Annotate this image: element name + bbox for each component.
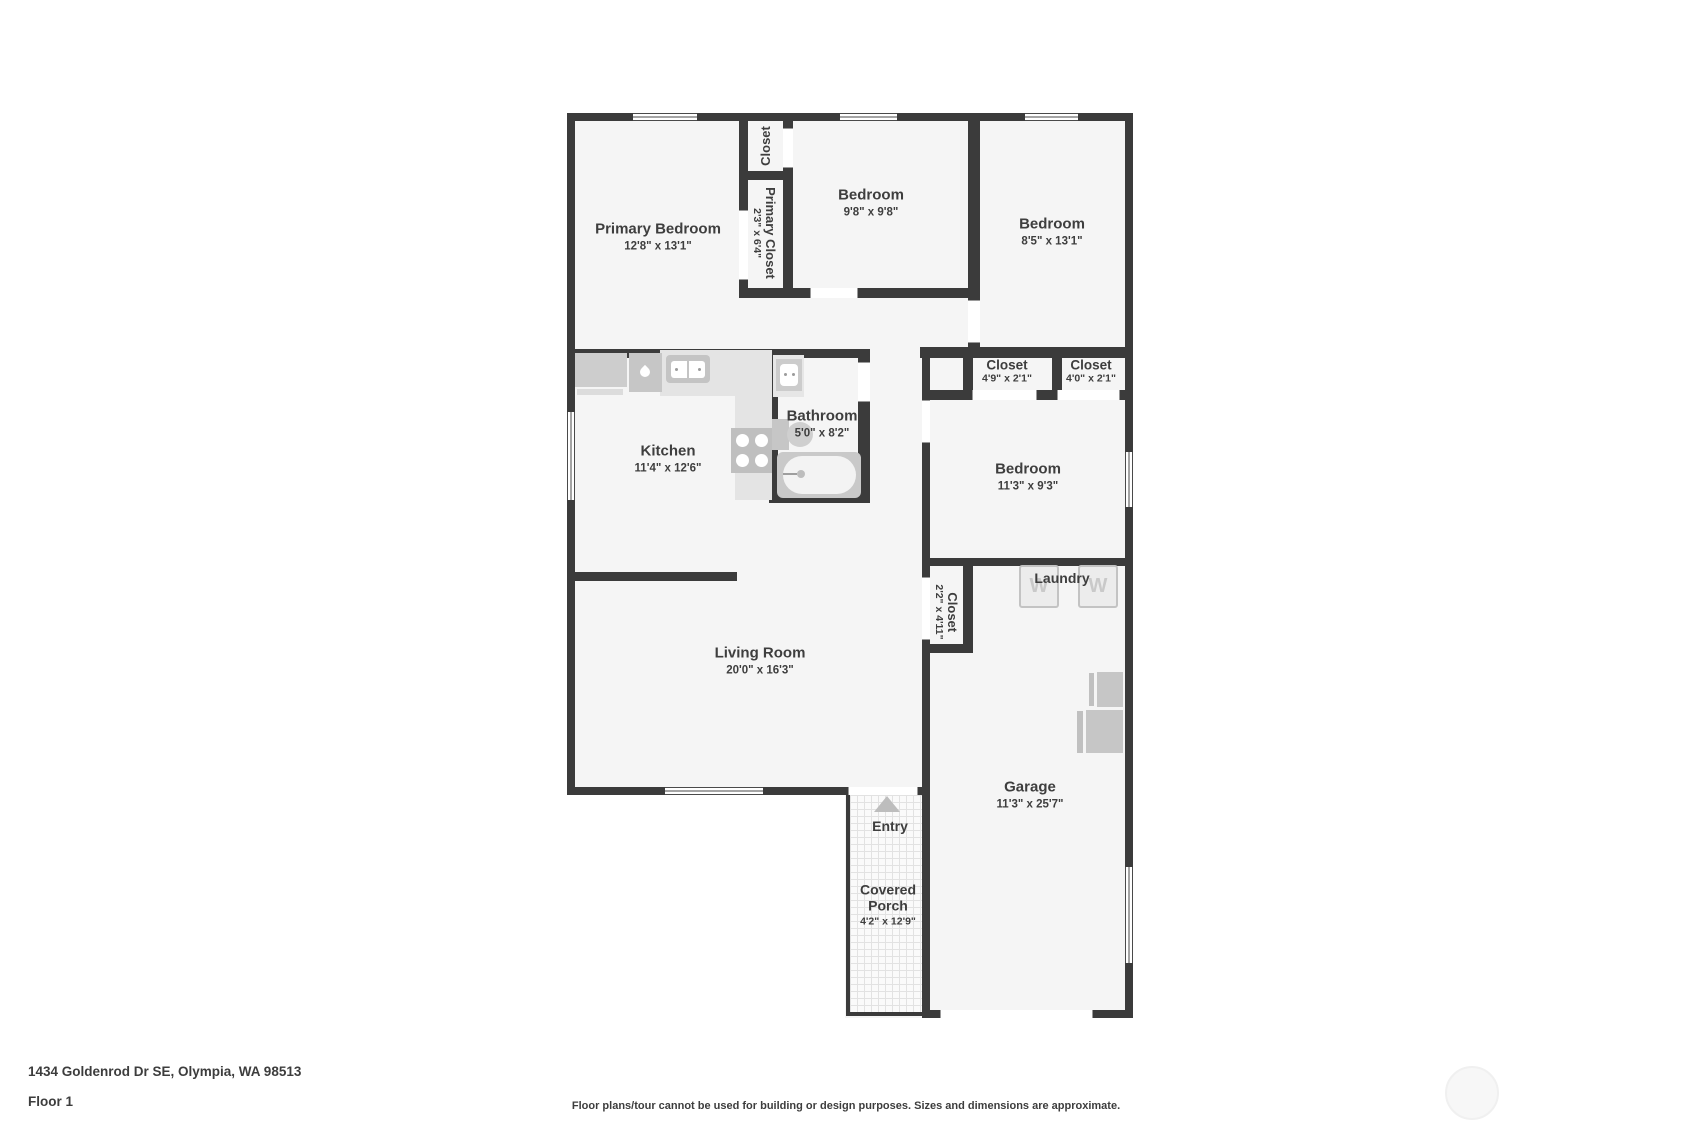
- room-label-garage: Garage 11'3" x 25'7": [997, 780, 1064, 811]
- window-bedroom3: [1025, 113, 1078, 121]
- wall-closet-row-top: [920, 347, 1133, 358]
- door-primary-bedroom: [810, 288, 858, 298]
- wall-bed2-bottom-b: [858, 288, 980, 298]
- wall-garage-left: [922, 640, 930, 1018]
- room-label-primary-bedroom: Primary Bedroom 12'8" x 13'1": [595, 222, 721, 253]
- door-closet2: [1057, 390, 1120, 400]
- door-bathroom: [858, 362, 870, 402]
- floor-label: Floor 1: [28, 1094, 73, 1109]
- stove-burner: [755, 434, 768, 447]
- floor-plan: W W Primary Bedroom 12'8" x 13'1" Closet…: [0, 0, 1697, 1131]
- room-label-bathroom: Bathroom 5'0" x 8'2": [787, 409, 858, 440]
- room-label-closet1: Closet 4'9" x 2'1": [982, 357, 1032, 384]
- wall-hall-right-a: [922, 347, 930, 400]
- room-label-closet3: Closet 2'2" x 4'11": [933, 584, 959, 639]
- door-entry: [848, 787, 918, 795]
- door-closet3: [922, 577, 930, 640]
- room-label-bedroom2: Bedroom 9'8" x 9'8": [838, 188, 904, 219]
- sink-faucet-dot: [675, 368, 678, 371]
- room-label-closet2: Closet 4'0" x 2'1": [1066, 357, 1116, 384]
- stove-burner: [755, 454, 768, 467]
- door-closet1: [972, 390, 1037, 400]
- wall-kitchen-living-divider: [572, 572, 737, 581]
- fridge-drawer: [577, 389, 623, 395]
- door-bedroom3: [968, 300, 980, 343]
- entry-arrow-icon: [874, 796, 900, 812]
- room-label-primary-closet: Primary Closet 2'3" x 6'4": [751, 187, 777, 279]
- garage-door-opening: [940, 1010, 1093, 1018]
- address-text: 1434 Goldenrod Dr SE, Olympia, WA 98513: [28, 1064, 301, 1079]
- window-kitchen: [567, 412, 575, 500]
- wall-bed2-bed3-divider-b: [968, 343, 980, 349]
- wall-closet3-bottom: [922, 644, 973, 653]
- bath-faucet-dot: [784, 373, 787, 376]
- wall-porch-bottom: [846, 1012, 922, 1016]
- wall-closet-col-left-b: [739, 280, 748, 298]
- room-label-living-room: Living Room 20'0" x 16'3": [715, 646, 806, 677]
- window-primary-bedroom: [633, 113, 697, 121]
- wall-closet-col-left-a: [739, 121, 748, 210]
- water-heater: [1097, 672, 1123, 707]
- window-bedroom4: [1125, 452, 1133, 507]
- stove-burner: [736, 434, 749, 447]
- dryer-letter: W: [1089, 575, 1108, 598]
- room-label-laundry: Laundry: [1034, 571, 1089, 587]
- wall-hall-right-b: [922, 443, 930, 577]
- disclaimer-text: Floor plans/tour cannot be used for buil…: [572, 1100, 1120, 1112]
- wall-closet1-left: [963, 358, 973, 394]
- window-garage: [1125, 867, 1133, 963]
- utility-box-bar: [1077, 711, 1083, 753]
- room-label-closet-top: Closet: [759, 126, 773, 166]
- bathtub-drain: [797, 470, 805, 478]
- bathtub-faucet-line: [783, 473, 797, 475]
- room-label-kitchen: Kitchen 11'4" x 12'6": [635, 444, 702, 475]
- wall-bed2-bottom-a: [739, 288, 810, 298]
- wall-closet1-closet2-divider: [1052, 358, 1062, 394]
- wall-closet3-right: [963, 566, 973, 652]
- door-primary-closet: [739, 210, 748, 280]
- bath-faucet-dot: [792, 373, 795, 376]
- room-label-bedroom4: Bedroom 11'3" x 9'3": [995, 462, 1061, 493]
- window-living-room: [665, 787, 763, 795]
- wall-bed2-bed3-divider: [968, 121, 980, 300]
- room-label-bedroom3: Bedroom 8'5" x 13'1": [1019, 217, 1085, 248]
- watermark-logo: [1445, 1066, 1499, 1120]
- water-heater-bar: [1089, 673, 1094, 706]
- utility-box: [1086, 710, 1123, 753]
- bath-sink-basin: [780, 364, 798, 386]
- fridge: [575, 353, 627, 387]
- stove-burner: [736, 454, 749, 467]
- window-bedroom2: [840, 113, 897, 121]
- sink-faucet-dot: [698, 368, 701, 371]
- bathtub-basin: [783, 456, 856, 494]
- door-bedroom4: [922, 400, 930, 443]
- wall-closet-divider-h: [744, 171, 792, 180]
- room-label-covered-porch: Covered Porch 4'2" x 12'9": [845, 882, 931, 927]
- room-label-entry: Entry: [872, 819, 908, 835]
- door-closet-top: [783, 128, 793, 168]
